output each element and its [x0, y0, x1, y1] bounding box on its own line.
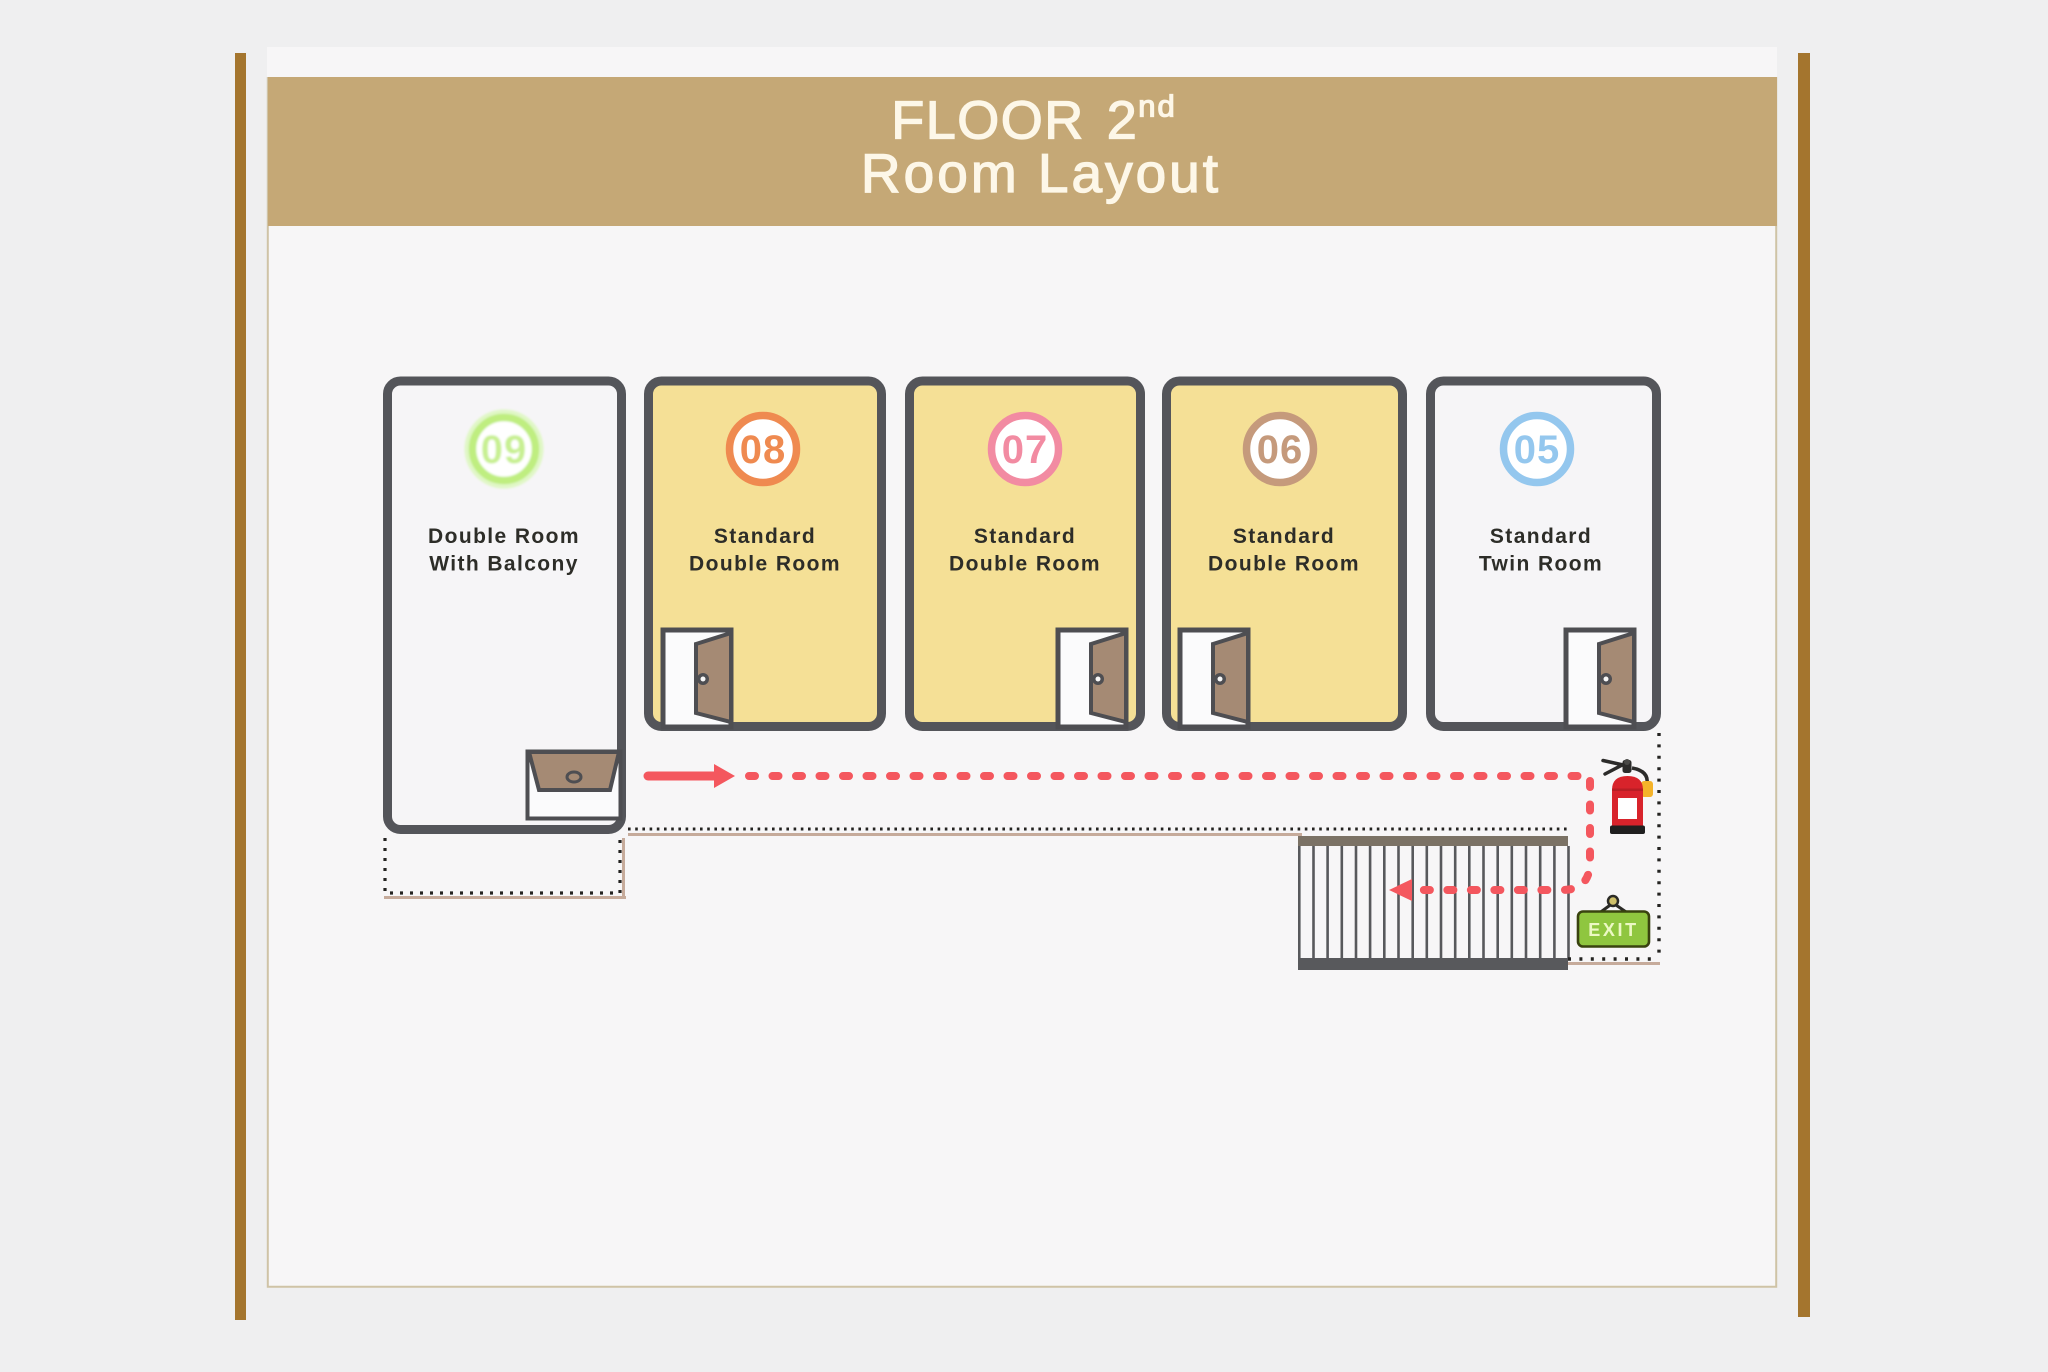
svg-text:Double Room: Double Room — [428, 525, 580, 548]
svg-text:Room Layout: Room Layout — [861, 142, 1221, 204]
svg-text:07: 07 — [1002, 428, 1049, 472]
svg-text:Twin Room: Twin Room — [1479, 553, 1603, 576]
svg-text:Double Room: Double Room — [949, 553, 1101, 576]
svg-text:With Balcony: With Balcony — [429, 553, 579, 576]
svg-text:Standard: Standard — [1233, 525, 1335, 548]
svg-text:Standard: Standard — [714, 525, 816, 548]
svg-text:Standard: Standard — [974, 525, 1076, 548]
svg-text:Double Room: Double Room — [1208, 553, 1360, 576]
svg-text:EXIT: EXIT — [1588, 920, 1638, 940]
svg-text:05: 05 — [1514, 428, 1561, 472]
svg-text:Double Room: Double Room — [689, 553, 841, 576]
svg-text:09: 09 — [481, 428, 528, 472]
svg-text:Standard: Standard — [1490, 525, 1592, 548]
svg-text:08: 08 — [740, 428, 787, 472]
svg-text:06: 06 — [1257, 428, 1304, 472]
